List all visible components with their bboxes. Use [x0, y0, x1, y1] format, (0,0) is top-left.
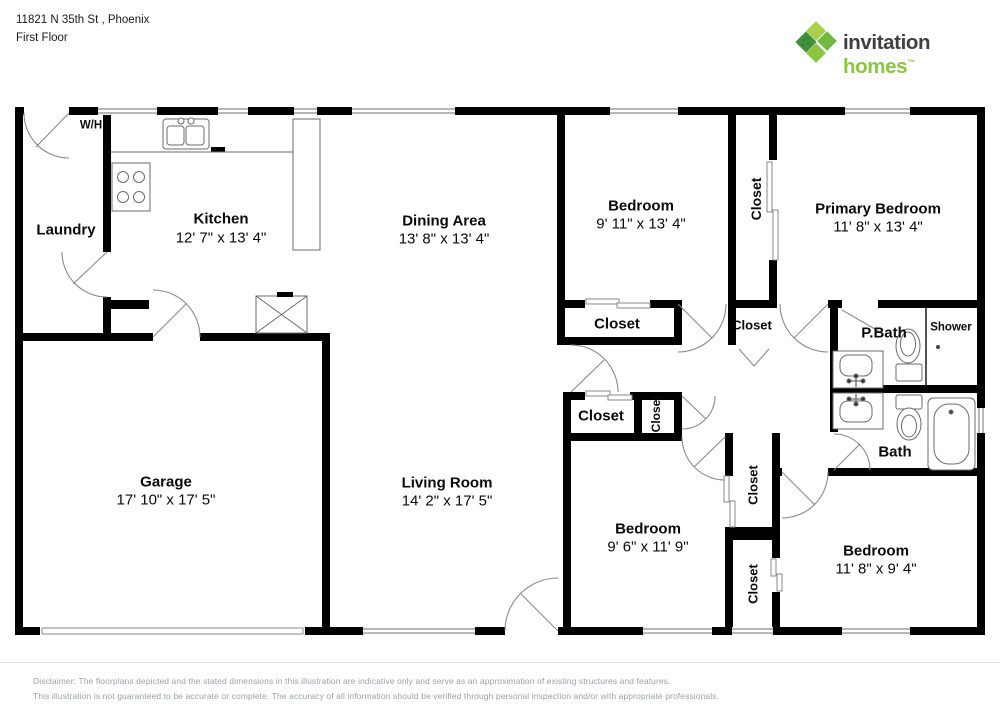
- closet-label-bedroom-top: Closet: [594, 317, 640, 332]
- footer-divider: [0, 662, 1000, 663]
- dining-area-dims: 13' 8" x 13' 4": [399, 232, 490, 247]
- floorplan-page: 11821 N 35th St , Phoenix First Floor in…: [0, 0, 1000, 707]
- garage-label: Garage: [140, 475, 192, 490]
- kitchen-counter-column: [293, 119, 320, 250]
- bath-vanity-icon: [833, 393, 883, 429]
- island-tick: [277, 292, 293, 297]
- hall-closet-bifold: [739, 349, 769, 366]
- closet-label-hall: Closet: [732, 319, 772, 332]
- primary-bedroom-label: Primary Bedroom: [815, 202, 941, 217]
- shower-drain-icon: [936, 345, 940, 349]
- garage-door: [42, 628, 303, 634]
- shower-divider-wall: [925, 308, 927, 385]
- living-room-dims: 14' 2" x 17' 5": [402, 494, 493, 509]
- kitchen-label: Kitchen: [193, 212, 248, 227]
- closet-label-stacked-upper: Closet: [747, 465, 760, 505]
- water-heater-label: W/H: [80, 120, 102, 132]
- pbath-vanity-icon: [833, 351, 883, 388]
- bedroom-bottom-label: Bedroom: [843, 544, 909, 559]
- primary-bath-label: P.Bath: [861, 326, 907, 341]
- floorplan-drawing: [0, 0, 1000, 707]
- kitchen-appliance-tick: [211, 147, 225, 152]
- bedroom-top-label: Bedroom: [608, 199, 674, 214]
- closet-label-stacked-lower: Closet: [747, 564, 760, 604]
- living-room-label: Living Room: [402, 476, 493, 491]
- closet-label-mid-horizontal: Closet: [578, 409, 624, 424]
- disclaimer-line2: This illustration is not guaranteed to b…: [33, 691, 719, 701]
- stove-icon: [112, 163, 150, 211]
- kitchen-island-icon: [256, 296, 307, 333]
- kitchen-dims: 12' 7" x 13' 4": [176, 231, 267, 246]
- bathtub-icon: [928, 398, 975, 470]
- laundry-label: Laundry: [36, 223, 95, 238]
- shower-label: Shower: [930, 322, 972, 334]
- bedroom-top-dims: 9' 11" x 13' 4": [596, 217, 686, 232]
- bedroom-bottom-dims: 11' 8" x 9' 4": [835, 562, 916, 577]
- disclaimer-line1: Disclaimer: The floorplans depicted and …: [33, 676, 671, 686]
- bedroom-middle-label: Bedroom: [615, 522, 681, 537]
- bedroom-middle-dims: 9' 6" x 11' 9": [607, 540, 688, 555]
- bath-toilet-icon: [896, 395, 922, 440]
- kitchen-sink-icon: [163, 118, 209, 149]
- closet-label-top-vertical: Closet: [749, 178, 763, 221]
- bath-label: Bath: [878, 445, 911, 460]
- primary-bedroom-dims: 11' 8" x 13' 4": [833, 220, 923, 235]
- dining-area-label: Dining Area: [402, 214, 486, 229]
- garage-dims: 17' 10" x 17' 5": [117, 493, 216, 508]
- closet-label-mid-vertical: Closet: [650, 396, 662, 433]
